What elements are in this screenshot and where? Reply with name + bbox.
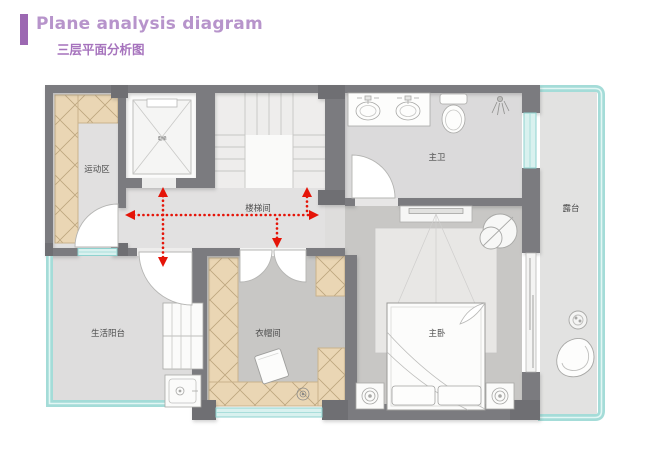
terrace-plant-table bbox=[569, 311, 587, 329]
bathroom-terrace-window bbox=[524, 113, 536, 168]
stair-landing bbox=[246, 135, 293, 188]
balcony-items bbox=[163, 303, 203, 407]
wall-hall-bottom-a bbox=[192, 248, 240, 256]
wall-elevator-left bbox=[118, 93, 126, 188]
cloakroom-wardrobe-right bbox=[318, 348, 345, 406]
bedroom-sliding-door bbox=[526, 253, 536, 372]
wall-activity-right bbox=[118, 188, 126, 208]
wall-cloak-bedroom bbox=[345, 255, 357, 406]
activity-window bbox=[78, 249, 117, 256]
elevator-door bbox=[147, 99, 177, 107]
nightstand-left bbox=[356, 383, 384, 409]
pier-stairwall-end bbox=[318, 190, 345, 205]
wall-stairs-right bbox=[325, 93, 345, 205]
label-cloakroom: 衣帽间 bbox=[255, 328, 281, 339]
label-stairhall: 楼梯间 bbox=[245, 203, 271, 214]
activity-cabinet-left bbox=[55, 95, 78, 243]
toilet bbox=[440, 94, 467, 133]
wall-right-mid bbox=[522, 168, 540, 253]
floor-plan: 电梯 bbox=[0, 0, 650, 449]
wall-left bbox=[45, 85, 53, 256]
hall-bedroom-passage bbox=[325, 205, 345, 248]
wall-right-top bbox=[522, 85, 540, 113]
nightstand-right bbox=[486, 383, 514, 409]
bath-door-opening bbox=[355, 198, 398, 206]
label-bathroom: 主卫 bbox=[428, 152, 446, 163]
cloakroom-wardrobe-bottom bbox=[209, 382, 328, 406]
pillow-left bbox=[392, 386, 435, 405]
wall-bath-bottom-b bbox=[398, 198, 522, 206]
wall-hall-bottom-b bbox=[306, 248, 345, 256]
header-titles: Plane analysis diagram 三层平面分析图 bbox=[36, 14, 263, 58]
label-bedroom: 主卧 bbox=[428, 328, 446, 339]
pier-top-b bbox=[318, 85, 345, 99]
wall-bath-bottom-a bbox=[345, 198, 355, 206]
label-activity: 运动区 bbox=[84, 164, 110, 175]
page-title: Plane analysis diagram bbox=[36, 14, 263, 35]
elevator-label: 电梯 bbox=[158, 135, 167, 142]
pier-cloak-br bbox=[322, 400, 348, 420]
label-balcony: 生活阳台 bbox=[91, 328, 125, 339]
page-subtitle: 三层平面分析图 bbox=[57, 39, 263, 58]
wall-elevator-right bbox=[196, 93, 215, 188]
bed bbox=[387, 303, 485, 410]
cloakroom-window bbox=[216, 408, 322, 417]
pier-bedroom-br bbox=[510, 400, 540, 420]
accent-bar bbox=[20, 14, 28, 45]
cloakroom-wardrobe-top-right bbox=[316, 256, 345, 296]
pillow-right bbox=[438, 386, 481, 405]
pier-top-a bbox=[111, 85, 128, 98]
pier-left-end bbox=[45, 243, 53, 256]
page-header: Plane analysis diagram 三层平面分析图 bbox=[20, 14, 263, 58]
washing-machine bbox=[165, 375, 201, 407]
label-terrace: 露台 bbox=[562, 203, 579, 214]
laundry-cabinet bbox=[163, 303, 203, 369]
elevator-opening bbox=[142, 178, 176, 188]
screenshot-root: Plane analysis diagram 三层平面分析图 bbox=[0, 0, 650, 449]
